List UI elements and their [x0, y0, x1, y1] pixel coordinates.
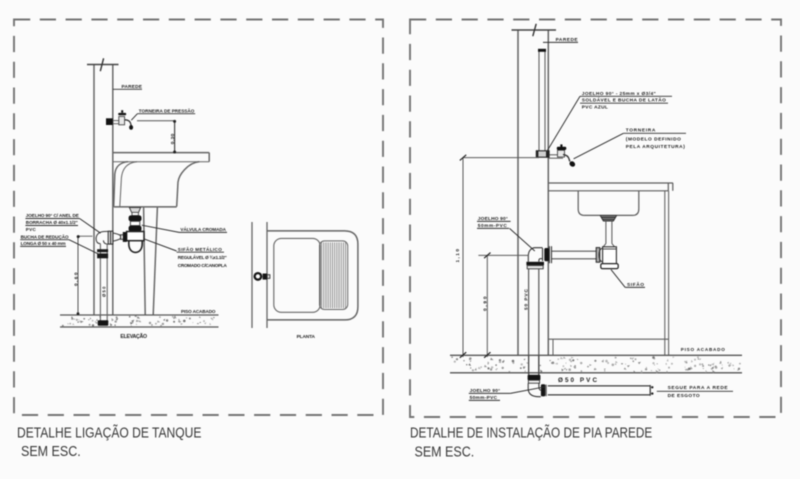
svg-text:BUCHA DE REDUÇÃO: BUCHA DE REDUÇÃO [21, 233, 69, 239]
svg-text:0,60: 0,60 [73, 272, 79, 286]
svg-text:50 PVC: 50 PVC [523, 288, 529, 310]
svg-text:PISO ACABADO: PISO ACABADO [681, 347, 725, 352]
svg-text:DETALHE DE INSTALAÇÃO DE PIA P: DETALHE DE INSTALAÇÃO DE PIA PAREDE [410, 425, 653, 441]
svg-text:TORNEIRA: TORNEIRA [626, 128, 656, 134]
svg-text:PISO ACABADO: PISO ACABADO [181, 309, 216, 314]
svg-text:VÁLVULA CROMADA: VÁLVULA CROMADA [180, 226, 226, 232]
svg-text:JOELHO 90°: JOELHO 90° [478, 216, 508, 222]
svg-text:0,30: 0,30 [170, 133, 176, 144]
svg-text:PELA ARQUITETURA): PELA ARQUITETURA) [626, 144, 685, 150]
svg-text:BORRACHA Ø 40x1.1/2": BORRACHA Ø 40x1.1/2" [26, 220, 78, 225]
svg-text:Ø50: Ø50 [101, 286, 106, 297]
svg-text:(MODELO DEFINIDO: (MODELO DEFINIDO [626, 136, 681, 142]
svg-text:SEM ESC.: SEM ESC. [21, 443, 81, 459]
svg-text:PVC AZUL: PVC AZUL [582, 104, 608, 110]
svg-text:PVC: PVC [26, 227, 37, 232]
svg-text:SIFÃO: SIFÃO [627, 281, 644, 288]
svg-text:ELEVAÇÃO: ELEVAÇÃO [120, 333, 147, 340]
svg-text:SIFÃO METÁLICO: SIFÃO METÁLICO [178, 246, 222, 252]
svg-text:JOELHO 90°: JOELHO 90° [470, 388, 501, 394]
svg-text:1,10: 1,10 [455, 249, 461, 263]
svg-text:PAREDE: PAREDE [122, 84, 143, 90]
svg-text:JOELHO 90° - 25mm x Ø3/4": JOELHO 90° - 25mm x Ø3/4" [582, 91, 656, 97]
svg-text:DETALHE LIGAÇÃO DE TANQUE: DETALHE LIGAÇÃO DE TANQUE [17, 425, 202, 441]
svg-text:Ø50 PVC: Ø50 PVC [558, 377, 597, 384]
svg-text:50mm-PVC: 50mm-PVC [470, 395, 498, 401]
svg-text:SEM ESC.: SEM ESC. [415, 444, 475, 460]
svg-text:CROMADO C/CANOPLA: CROMADO C/CANOPLA [178, 263, 228, 268]
svg-text:0,90: 0,90 [483, 296, 489, 311]
svg-text:REGULÁVEL Ø ¾x1.1/2": REGULÁVEL Ø ¾x1.1/2" [178, 254, 227, 260]
svg-text:DE ESGOTO: DE ESGOTO [668, 393, 700, 399]
svg-text:PAREDE: PAREDE [556, 37, 579, 43]
svg-text:SOLDÁVEL E BUCHA DE LATÃO: SOLDÁVEL E BUCHA DE LATÃO [582, 97, 666, 104]
svg-text:LONGA Ø 50 x 40 mm: LONGA Ø 50 x 40 mm [21, 241, 66, 246]
svg-text:PLANTA: PLANTA [297, 334, 316, 340]
svg-text:SEGUE PARA A REDE: SEGUE PARA A REDE [668, 385, 729, 391]
svg-text:50mm-PVC: 50mm-PVC [478, 223, 508, 229]
svg-text:TORNEIRA DE PRESSÃO: TORNEIRA DE PRESSÃO [139, 107, 195, 113]
svg-text:JOELHO 90° C/ ANEL DE: JOELHO 90° C/ ANEL DE [26, 213, 79, 218]
